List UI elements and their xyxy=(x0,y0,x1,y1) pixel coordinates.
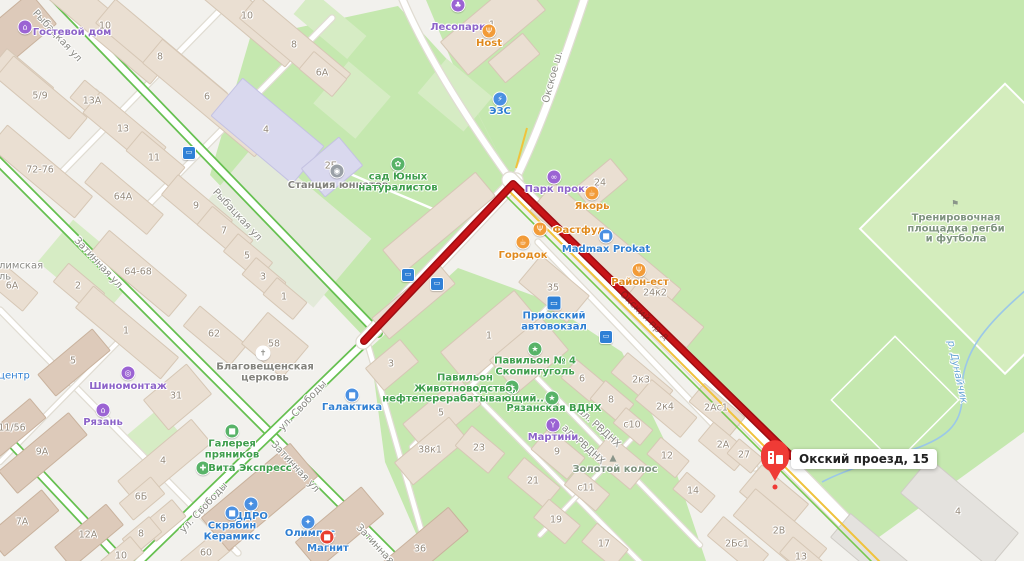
building-number: 27 xyxy=(738,450,750,461)
building-number: 64А xyxy=(114,192,133,203)
building-number: 23 xyxy=(473,443,485,454)
building-number: 35 xyxy=(547,283,559,294)
building-number: 8 xyxy=(157,52,163,63)
skryabin-keramiks-label[interactable]: СкрябинКерамикс xyxy=(204,522,261,543)
galaktika--shop-icon[interactable]: ■ xyxy=(345,388,360,403)
street-label: р. Дунайчик xyxy=(945,340,969,405)
building-number: 1 xyxy=(281,292,287,303)
building-number: 1 xyxy=(123,326,129,337)
trenirovochnaya-ploshchadka--run-icon[interactable]: ⚑ xyxy=(949,199,962,212)
building-number: 11 xyxy=(148,153,160,164)
building-number: 72-76 xyxy=(26,165,54,176)
galereya-pryanikov-label[interactable]: Галереяпряников xyxy=(205,440,259,461)
building-number: 12 xyxy=(661,451,673,462)
building-number: 17 xyxy=(598,539,610,550)
organization-building-icon xyxy=(768,451,783,464)
building-number: 7 xyxy=(221,226,227,237)
building-number: 38к1 xyxy=(418,445,442,456)
building-number: 2А xyxy=(717,440,730,451)
building-number: 62 xyxy=(208,329,220,340)
stanciya-yunnatov--yun-icon[interactable]: ◉ xyxy=(330,164,345,179)
building-number: 4 xyxy=(263,125,269,136)
ddro--star4-icon[interactable]: ✦ xyxy=(244,497,259,512)
street-label: алимская xyxy=(0,261,43,272)
ryazanskaya-vdnh-label[interactable]: Рязанская ВДНХ xyxy=(506,404,601,415)
building-number: 9А xyxy=(36,447,49,458)
map-canvas[interactable]: 108642Б1086А15/913А131172-7664А975316А26… xyxy=(0,0,1024,561)
street-label: Окское ш. xyxy=(541,50,565,104)
galereya-pryanikov--shop-icon[interactable]: ■ xyxy=(225,424,240,439)
ryazan-hotel-label[interactable]: Рязань xyxy=(83,418,123,429)
lesopark-label[interactable]: Лесопарк xyxy=(430,23,486,34)
martini-label[interactable]: Мартини xyxy=(528,433,579,444)
bus-stop-icon[interactable]: ▭ xyxy=(401,268,415,282)
bus-stop-icon[interactable]: ▭ xyxy=(599,330,613,344)
building-number: 8 xyxy=(608,395,614,406)
gorodok--cafe-icon[interactable]: ☕ xyxy=(516,235,531,250)
bus-stop-icon[interactable]: ▭ xyxy=(430,277,444,291)
building-number: 12А xyxy=(79,530,98,541)
building-number: 5 xyxy=(244,251,250,262)
building-number: 10 xyxy=(115,551,127,561)
building-number: 9 xyxy=(193,201,199,212)
building-number: 4 xyxy=(160,456,166,467)
vita-express-label[interactable]: Вита Экспресс xyxy=(208,464,291,475)
madmax-prokat--shop-icon[interactable]: ■ xyxy=(599,229,614,244)
sad-naturalistov--leaf-icon[interactable]: ✿ xyxy=(391,157,406,172)
building-number: с11 xyxy=(577,483,594,494)
blagoveshchenskaya-cerkov--church-icon[interactable]: ✝ xyxy=(256,346,271,361)
blagoveshchenskaya-cerkov-label[interactable]: Благовещенскаяцерковь xyxy=(216,363,314,384)
shinomontazh-label[interactable]: Шиномонтаж xyxy=(89,382,167,393)
building-number: 4 xyxy=(955,507,961,518)
rayon-est--food-icon[interactable]: Ψ xyxy=(632,263,647,278)
fastfud--food-icon[interactable]: Ψ xyxy=(533,222,548,237)
martini--martini-icon[interactable]: Y xyxy=(546,418,561,433)
building-number: 6 xyxy=(160,514,166,525)
pavilion-zhivotnovodstvo-label[interactable]: ПавильонЖивотноводство,нефтеперерабатыва… xyxy=(382,373,548,405)
galaktika-label[interactable]: Галактика xyxy=(322,403,382,414)
building-number: 2к4 xyxy=(656,402,674,413)
building-number: 6 xyxy=(579,374,585,385)
street-label: ль xyxy=(0,272,11,283)
yakor--cafe-icon[interactable]: ☕ xyxy=(585,186,600,201)
building-number: 8 xyxy=(138,529,144,540)
building xyxy=(0,489,60,557)
zolotoy-kolos-label[interactable]: Золотой колос xyxy=(572,465,657,476)
building-number: 58 xyxy=(268,339,280,350)
building-number: 60 xyxy=(200,548,212,559)
building-number: 9 xyxy=(554,447,560,458)
building-number: 6Б xyxy=(135,492,148,503)
building-number: 13 xyxy=(795,552,807,561)
yakor-label[interactable]: Якорь xyxy=(575,202,610,213)
gostevoy-dom--hotel-icon[interactable]: ⌂ xyxy=(18,20,33,35)
building-number: 19 xyxy=(550,515,562,526)
building-number: 2Ас1 xyxy=(704,403,728,414)
building-number: 31 xyxy=(170,391,182,402)
building-number: 3 xyxy=(388,359,394,370)
gorodok-label[interactable]: Городок xyxy=(498,251,547,262)
building xyxy=(829,513,916,561)
building-number: 5 xyxy=(438,408,444,419)
park-prokat--bike-icon[interactable]: ∞ xyxy=(547,170,562,185)
building-number: 3 xyxy=(260,272,266,283)
gostevoy-dom-label[interactable]: Гостевой дом xyxy=(33,28,112,39)
lesopark--park-icon[interactable]: ♣ xyxy=(451,0,466,13)
building-number: 24к2 xyxy=(643,288,667,299)
priokskiy-avtovokzal--bus-icon[interactable]: ▭ xyxy=(547,296,562,311)
ryazan-hotel--hotel-icon[interactable]: ⌂ xyxy=(96,403,111,418)
building-number: 2Бс1 xyxy=(725,539,749,550)
building-number: 64-68 xyxy=(124,267,152,278)
building-number: 10 xyxy=(241,11,253,22)
building-number: 13А xyxy=(83,96,102,107)
building-number: с10 xyxy=(623,420,640,431)
building-number: 6 xyxy=(204,92,210,103)
building-number: 5/9 xyxy=(32,91,47,102)
building-number: 6А xyxy=(316,68,329,79)
madmax-prokat-label[interactable]: Madmax Prokat xyxy=(562,245,650,256)
building-number: 14 xyxy=(687,486,699,497)
building-number: 1 xyxy=(486,331,492,342)
sad-naturalistov-label[interactable]: сад Юныхнатуралистов xyxy=(358,173,437,194)
building-number: 13 xyxy=(117,124,129,135)
building-number: 21 xyxy=(527,476,539,487)
ezs-label[interactable]: ЭЗС xyxy=(489,107,511,118)
priokskiy-avtovokzal-label[interactable]: Приокскийавтовокзал xyxy=(521,312,587,333)
magnit-label[interactable]: Магнит xyxy=(307,544,349,555)
street-label: центр xyxy=(0,371,30,382)
skryabin-keramiks--shop-icon[interactable]: ■ xyxy=(225,506,240,521)
building-number: 5 xyxy=(70,356,76,367)
host-label[interactable]: Host xyxy=(476,39,502,50)
pavilion-4--star-icon[interactable]: ★ xyxy=(528,342,543,357)
building-number: 8 xyxy=(291,40,297,51)
building-number: 2 xyxy=(75,281,81,292)
bus-stop-icon[interactable]: ▭ xyxy=(182,146,196,160)
building-number: 36 xyxy=(414,544,426,555)
trenirovochnaya-ploshchadka-label[interactable]: Тренировочнаяплощадка регбии футбола xyxy=(907,213,1004,245)
building-number: 2к3 xyxy=(632,375,650,386)
building-number: 7А xyxy=(16,517,29,528)
host--food-icon[interactable]: Ψ xyxy=(482,24,497,39)
shinomontazh--tire-icon[interactable]: ◎ xyxy=(121,366,136,381)
destination-address-label[interactable]: Окский проезд, 15 xyxy=(791,449,937,469)
building-number: 2В xyxy=(773,526,786,537)
rayon-est-label[interactable]: Район-ест xyxy=(611,278,669,289)
building-number: 11/56 xyxy=(0,423,26,434)
ezs--ev-icon[interactable]: ⚡ xyxy=(493,92,508,107)
